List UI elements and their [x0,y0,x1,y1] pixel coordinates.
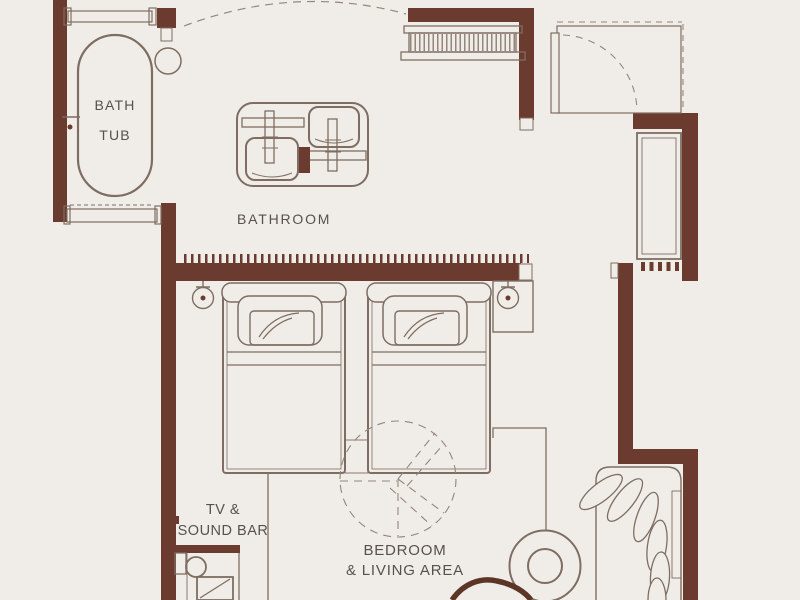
blanket-fold [372,352,486,365]
minibar-closet [175,553,239,600]
bedroom-label-line2: & LIVING AREA [325,561,485,581]
floor-plan: BATH TUB BATHROOM TV & SOUND BAR BEDROOM… [0,0,800,600]
bed-2 [367,283,491,473]
blanket-fold [227,352,341,365]
wardrobe [637,133,681,259]
wall-left-upper [53,0,67,222]
wardrobe-outer [637,133,681,259]
curtain-track-ticks [184,254,529,263]
fridge-diagonal [200,579,230,598]
grill-hatch [410,34,515,51]
wall-lamp-right [498,281,519,309]
towel-rail-top [68,11,152,22]
wall-cap [520,118,533,130]
bathroom-door-swing [184,2,406,27]
dashed-arm-left [340,479,398,536]
bathroom-label-text: BATHROOM [237,211,331,227]
wall-pier-top-left [157,8,176,28]
faucet-left-bar [242,118,304,127]
entry-door-leaf [551,33,559,113]
bathtub-label: BATH TUB [78,90,152,150]
towel-rail-bottom [67,209,157,222]
bedroom-label-line1: BEDROOM [325,541,485,561]
desk-ledge [493,428,546,531]
stool-circle [155,48,181,74]
tv-soundbar-label: TV & SOUND BAR [160,500,286,542]
entry-door-group [551,22,683,113]
tub-drain-dot [68,125,73,130]
vanity-counter [237,103,368,186]
mixer-tap [299,147,310,173]
bedroom-living-label: BEDROOM & LIVING AREA [325,541,485,581]
wall-cap [519,264,532,280]
grill-top-bar [404,26,522,33]
between-beds-bench [345,440,368,473]
bathtub-label-line1: BATH [78,90,152,120]
wall-cap [161,28,172,41]
wall-right-upper [682,113,698,281]
chaise-sofa [575,467,681,600]
faucet-right-stem [328,119,337,171]
closet-hinge [175,553,186,574]
wardrobe-inner [642,138,676,254]
bathtub-label-line2: TUB [78,120,152,150]
wall-right-lower [683,449,698,600]
bed-1 [222,283,346,473]
kettle-circle [186,557,206,577]
sofa-side-rail [672,491,681,578]
vanity-group [237,103,368,186]
wall-caps [161,28,618,280]
wall-top [408,8,532,22]
entry-area [557,26,681,113]
wall-minibar-top [172,545,240,553]
swivel-fan-dashed [340,421,456,537]
sink-left-basin-line [252,173,292,177]
bathroom-label: BATHROOM [237,211,331,227]
sink-right [309,107,359,147]
wall-right-mid [618,263,633,453]
entry-door-arc [563,35,637,111]
tv-label-line2: SOUND BAR [160,521,286,542]
door-arc-dashed [184,2,406,27]
wall-bed-head [176,263,521,281]
wall-top-vertical [519,8,534,120]
grill-bottom-bar [401,52,525,60]
wall-cap [611,263,618,278]
wall-lamp-left [193,281,214,309]
tv-label-line1: TV & [160,500,286,521]
sofa-cushions [575,469,671,600]
dashed-arm-up [398,433,441,486]
wardrobe-hatch [641,262,681,271]
